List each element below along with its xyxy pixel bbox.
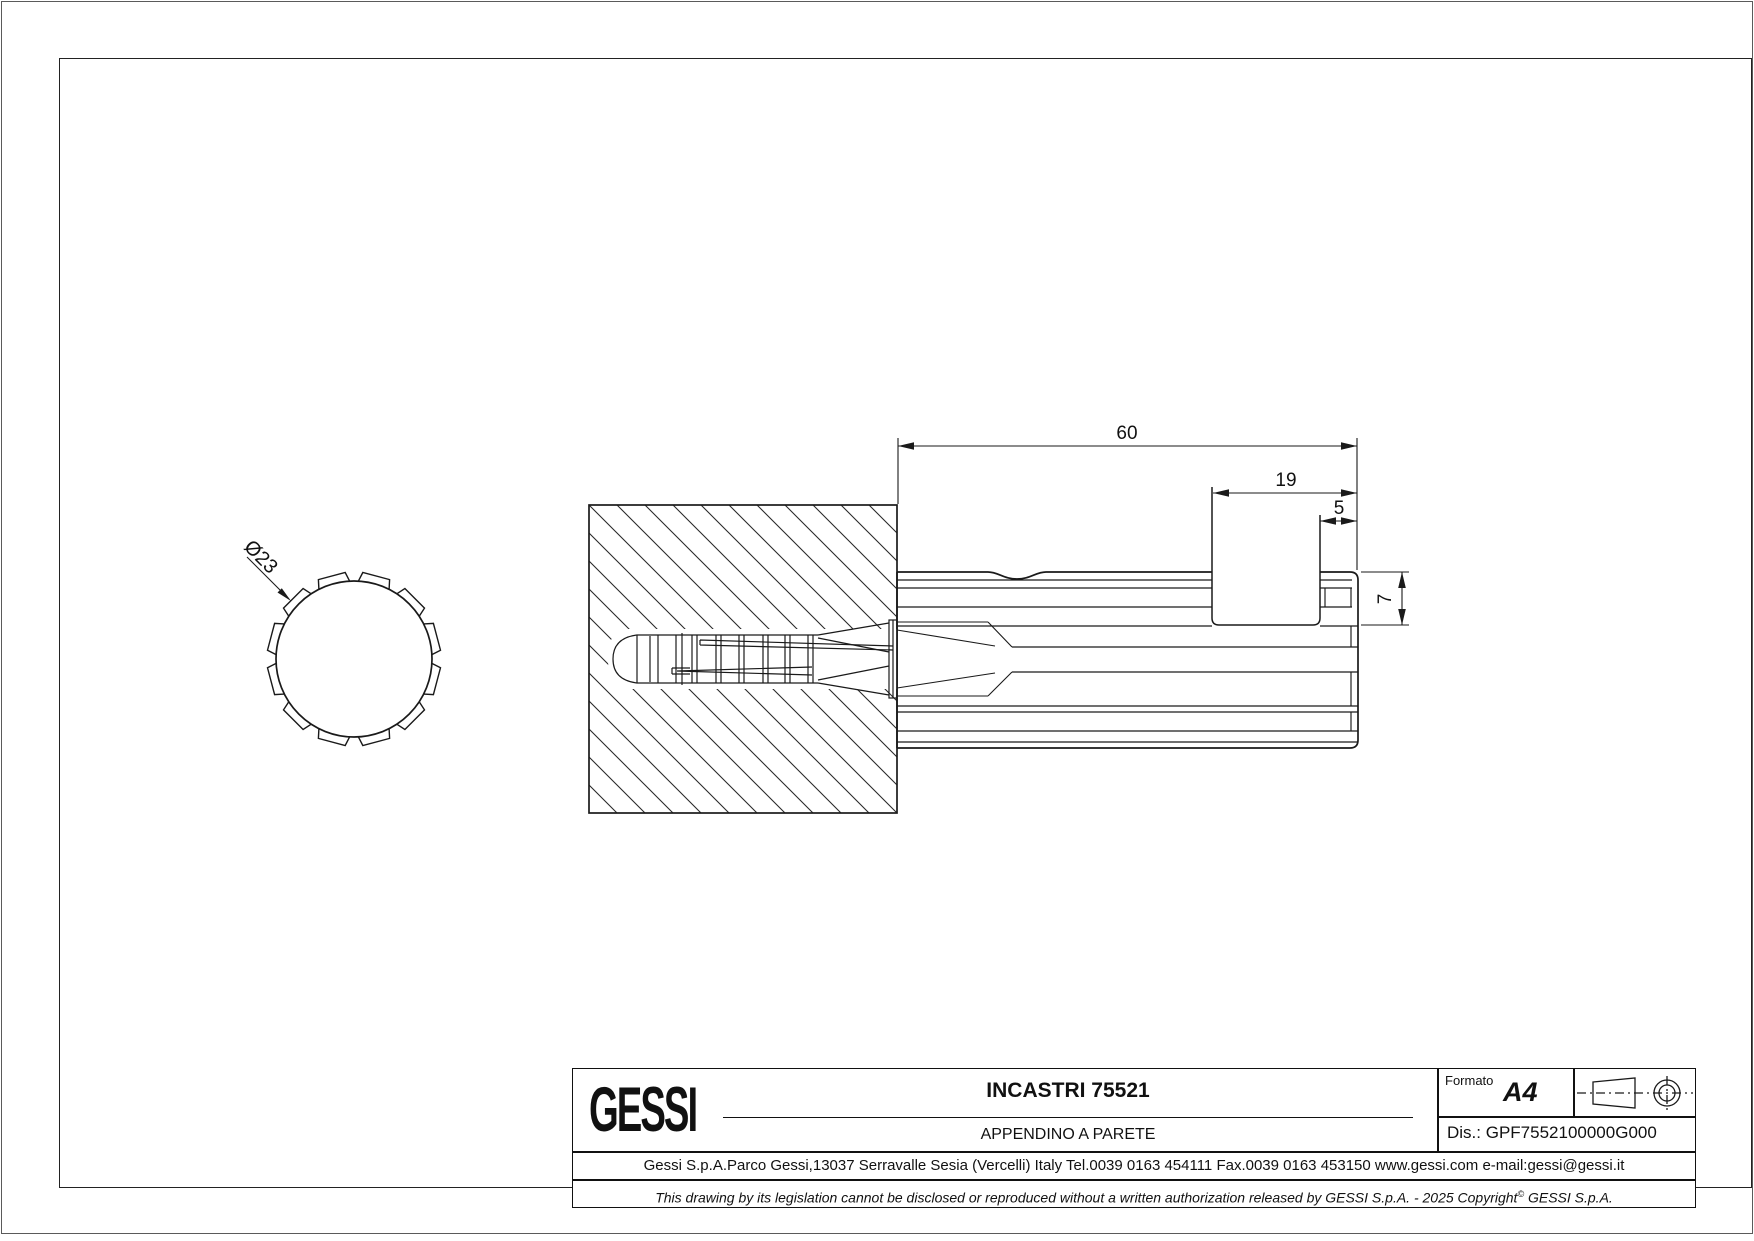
wall-section [589,505,897,813]
side-view: 60 19 5 [589,423,1409,813]
dim-19: 19 [1213,470,1357,497]
body-outline-right [897,572,1358,748]
titleblock-divider-formato [1437,1116,1695,1118]
legal-disclaimer-text: This drawing by its legislation cannot b… [655,1190,1517,1206]
legal-disclaimer-suffix: GESSI S.p.A. [1524,1190,1613,1206]
front-view: Ø23 [239,536,440,746]
dimensions: 60 19 5 [898,423,1409,625]
diameter-label: Ø23 [239,536,281,578]
gessi-logo-text: GESSI [589,1075,696,1146]
dim-19-label: 19 [1275,470,1296,491]
title-separator [723,1117,1413,1118]
body-top-edge [897,572,1212,579]
dim-5: 5 [1320,498,1357,525]
drawing-subtitle: APPENDINO A PARETE [723,1126,1413,1144]
drawing-number: Dis.: GPF7552100000G000 [1447,1123,1657,1143]
wall-drill-hole [608,629,897,689]
formato-label: Formato [1445,1073,1493,1088]
technical-drawing: Ø23 [0,0,1754,1241]
hook-body [897,487,1358,748]
dim-7: 7 [1361,572,1409,625]
dim-60: 60 [898,423,1357,570]
titleblock-divider-vertical-1 [1437,1069,1439,1151]
title-block: GESSI INCASTRI 75521 APPENDINO A PARETE … [572,1068,1696,1208]
body-counterbore [897,622,1012,696]
dim-5-label: 5 [1334,498,1345,519]
projection-symbol-icon [1575,1069,1695,1116]
front-view-tabs [268,573,441,746]
gessi-logo: GESSI [589,1075,739,1147]
body-groove-lines [897,580,1358,742]
body-slot [1212,487,1320,625]
legal-disclaimer: This drawing by its legislation cannot b… [573,1181,1695,1207]
formato-value: A4 [1503,1077,1538,1108]
drawing-sheet: Ø23 [0,0,1754,1241]
front-view-body-circle [276,581,432,737]
dim-7-label: 7 [1375,594,1396,605]
company-address: Gessi S.p.A.Parco Gessi,13037 Serravalle… [573,1153,1695,1179]
dim-60-label: 60 [1116,423,1137,444]
drawing-title: INCASTRI 75521 [723,1079,1413,1103]
